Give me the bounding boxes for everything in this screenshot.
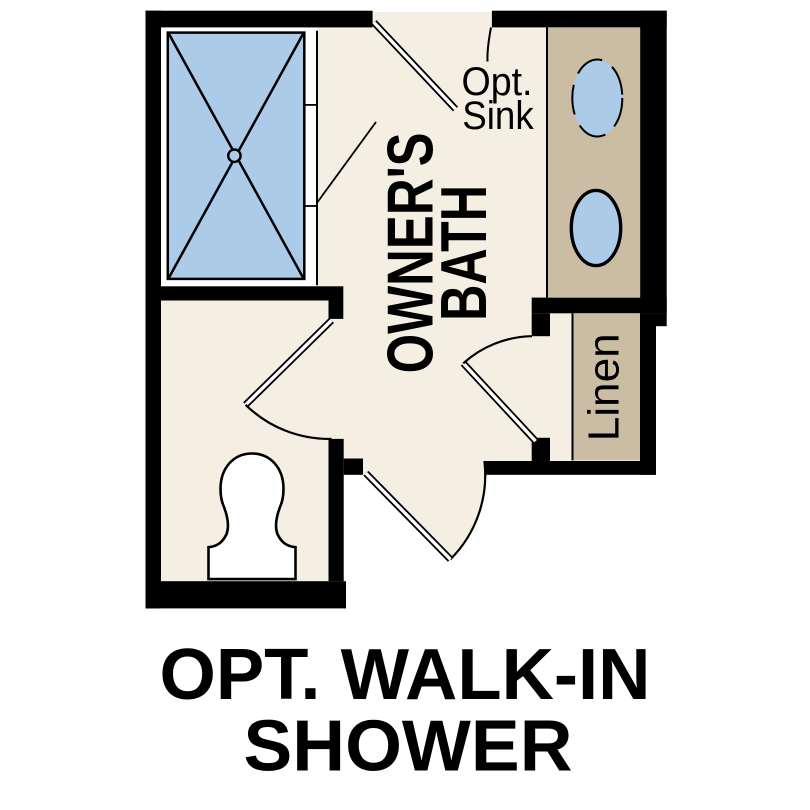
svg-text:SHOWER: SHOWER (244, 706, 573, 787)
svg-text:OPT. WALK-IN: OPT. WALK-IN (160, 634, 651, 715)
svg-text:Sink: Sink (462, 94, 534, 138)
svg-text:BATH: BATH (428, 185, 500, 321)
svg-text:Linen: Linen (580, 333, 629, 441)
